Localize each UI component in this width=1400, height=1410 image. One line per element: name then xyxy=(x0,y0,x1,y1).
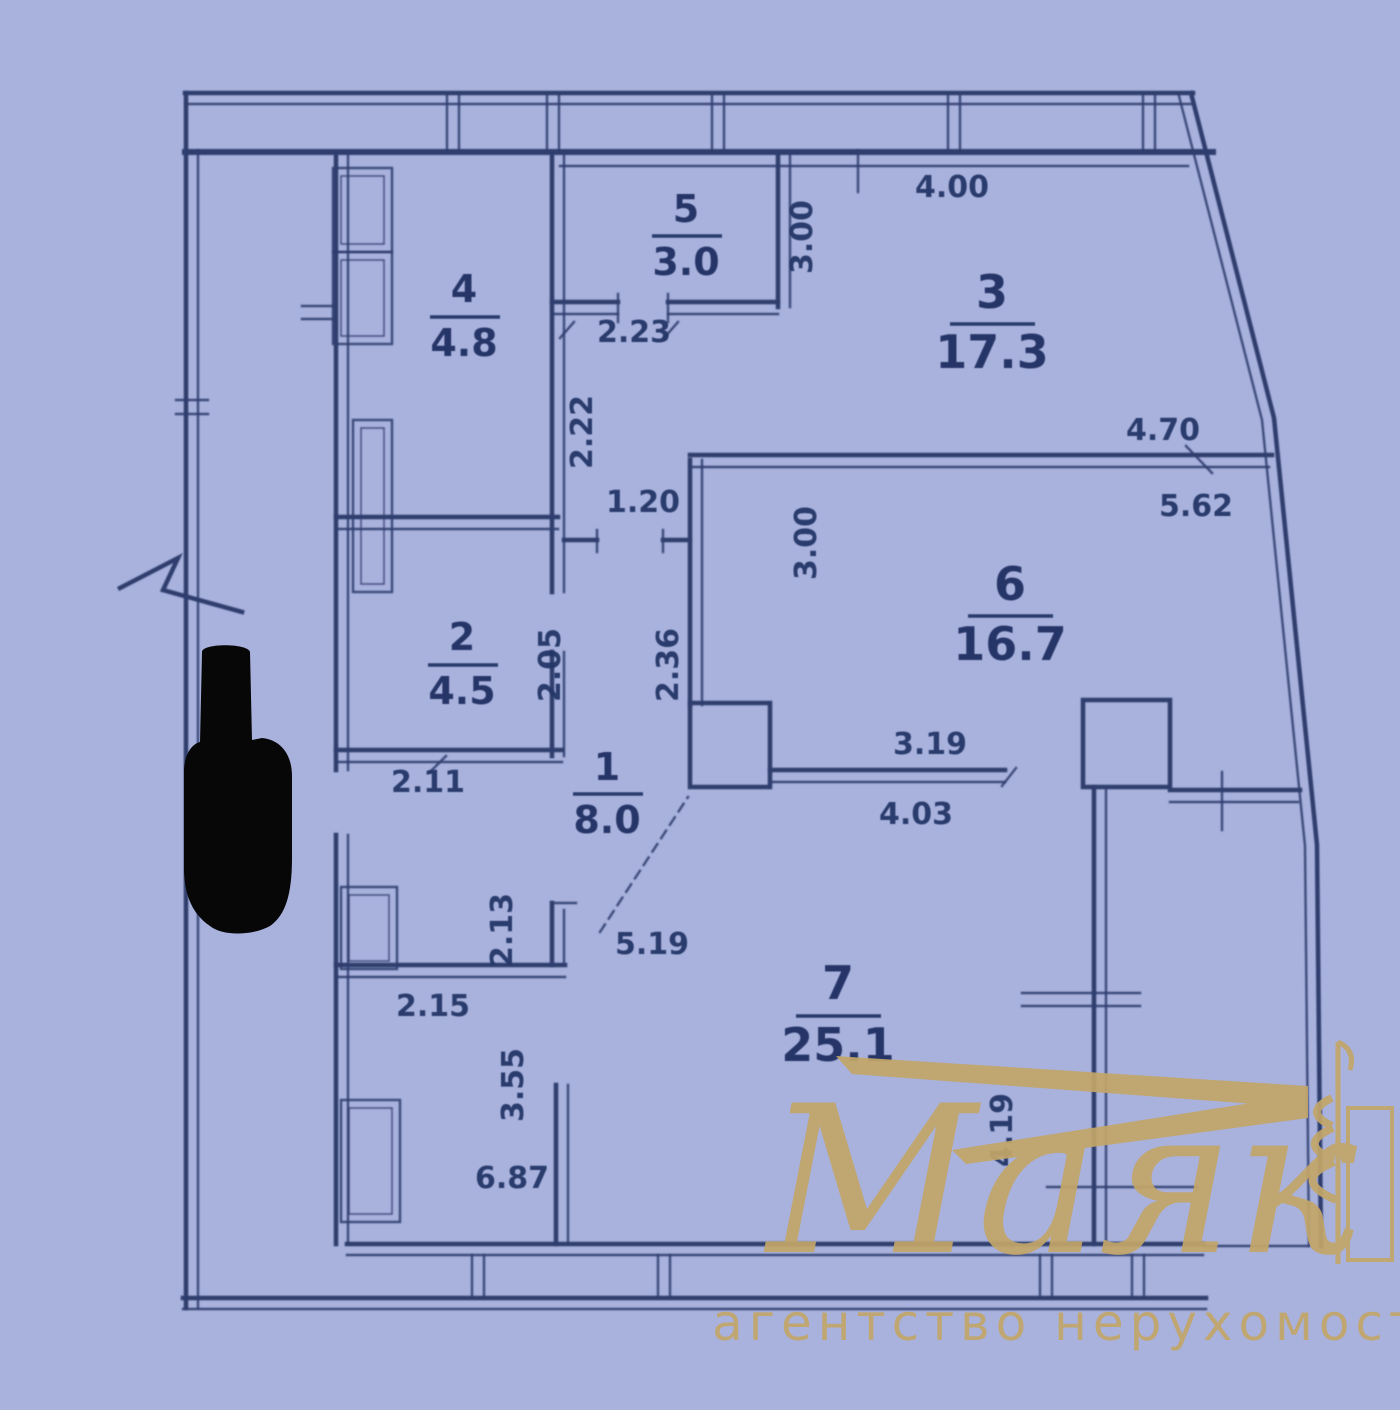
room-label-5: 5 3.0 xyxy=(652,187,722,284)
room-labels: 4 4.8 5 3.0 3 17.3 2 4.5 6 16.7 1 8.0 xyxy=(428,187,1067,1072)
dimension-1-20: 1.20 xyxy=(606,485,680,520)
dimension-3-00-top: 3.00 xyxy=(785,200,820,274)
dimension-4-03: 4.03 xyxy=(879,797,953,832)
room-area: 8.0 xyxy=(573,798,640,842)
room-number: 3 xyxy=(976,265,1008,319)
room-label-3: 3 17.3 xyxy=(935,265,1049,379)
dimension-2-22: 2.22 xyxy=(565,395,600,469)
dimension-3-19: 3.19 xyxy=(893,727,967,762)
room-number: 7 xyxy=(822,956,854,1010)
room-area: 17.3 xyxy=(935,325,1049,379)
dimension-5-19: 5.19 xyxy=(615,927,689,962)
dimension-3-55: 3.55 xyxy=(496,1048,531,1122)
room-area: 4.8 xyxy=(430,321,497,365)
dimension-4-70: 4.70 xyxy=(1126,413,1200,448)
watermark-subtitle: агентство нерухомості xyxy=(712,1294,1400,1352)
watermark-title: Маяк xyxy=(763,1063,1358,1301)
room-label-2: 2 4.5 xyxy=(428,615,498,713)
dimension-5-62: 5.62 xyxy=(1159,489,1233,524)
room-number: 2 xyxy=(449,615,475,659)
floor-plan-drawing: 4 4.8 5 3.0 3 17.3 2 4.5 6 16.7 1 8.0 xyxy=(0,0,1400,1410)
room-area: 16.7 xyxy=(953,617,1067,671)
room-area: 3.0 xyxy=(652,240,719,284)
dimension-2-36: 2.36 xyxy=(651,628,686,702)
floorplan-scan: 4 4.8 5 3.0 3 17.3 2 4.5 6 16.7 1 8.0 xyxy=(0,0,1400,1410)
dimension-2-11: 2.11 xyxy=(391,765,465,800)
watermark: Маяк агентство нерухомості xyxy=(712,1042,1400,1352)
dimension-2-23: 2.23 xyxy=(597,315,671,350)
dimension-6-87: 6.87 xyxy=(475,1161,549,1196)
room-number: 5 xyxy=(673,187,699,231)
dimension-2-13: 2.13 xyxy=(485,893,520,967)
dimension-3-00-mid: 3.00 xyxy=(789,506,824,580)
room-number: 6 xyxy=(994,557,1026,611)
redaction-blob xyxy=(184,645,292,933)
dimension-2-05: 2.05 xyxy=(533,628,568,702)
room-number: 4 xyxy=(451,267,477,311)
dimension-2-15: 2.15 xyxy=(396,989,470,1024)
room-number: 1 xyxy=(594,745,620,789)
room-area: 4.5 xyxy=(428,669,495,713)
room-label-7: 7 25.1 xyxy=(781,956,895,1072)
dimension-4-00: 4.00 xyxy=(915,170,989,205)
room-label-1: 1 8.0 xyxy=(573,745,643,842)
room-label-4: 4 4.8 xyxy=(430,267,500,365)
room-label-6: 6 16.7 xyxy=(953,557,1067,671)
